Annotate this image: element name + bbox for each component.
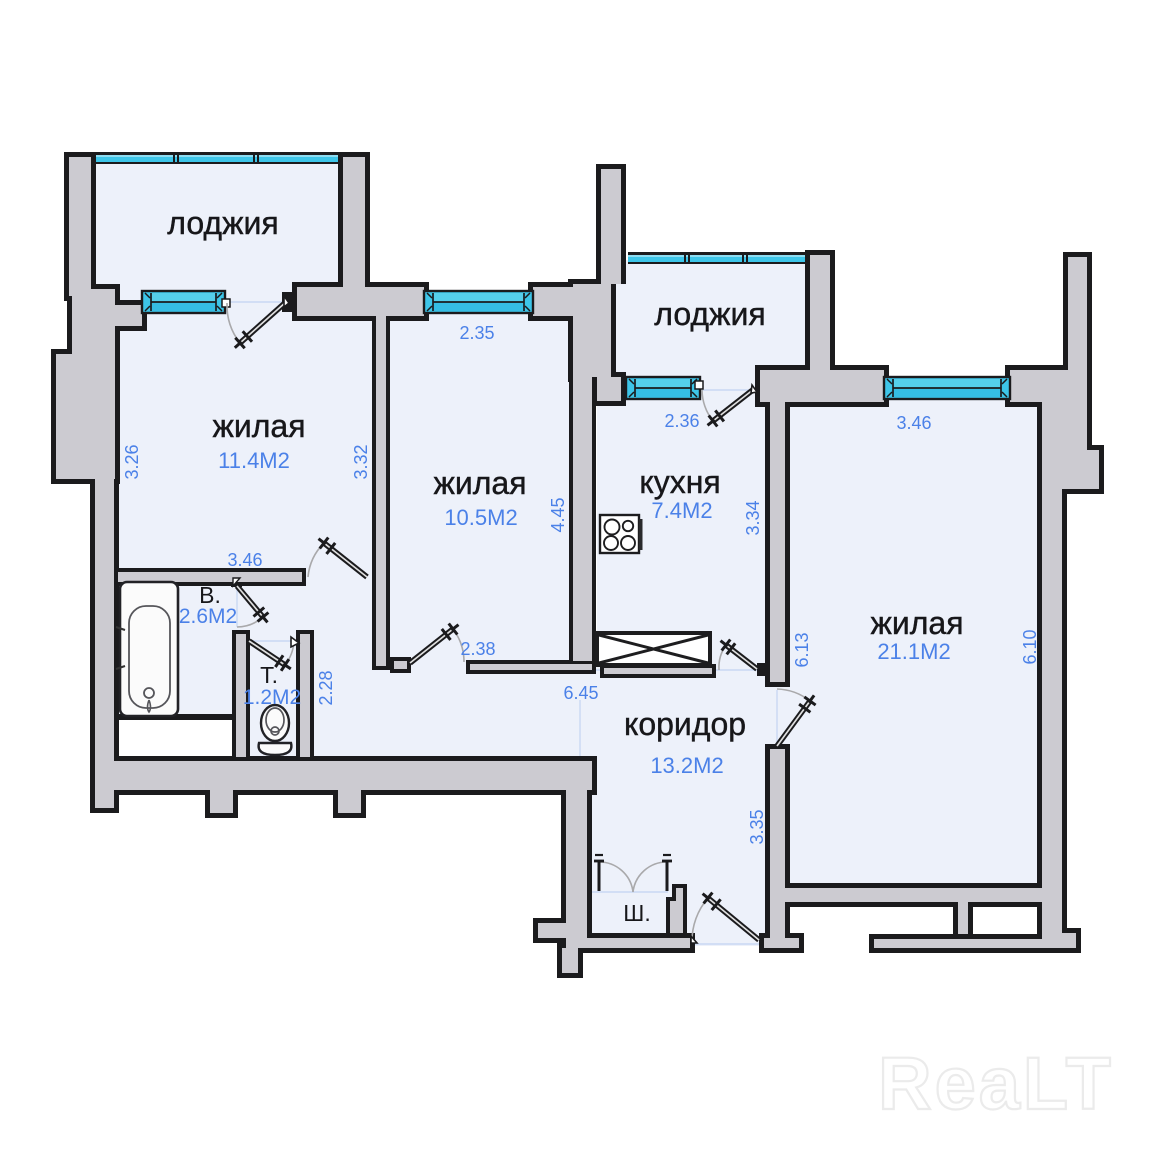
svg-text:2.35: 2.35	[459, 323, 494, 343]
svg-text:3.26: 3.26	[122, 444, 142, 479]
svg-text:жилая: жилая	[433, 465, 526, 501]
svg-text:Т.: Т.	[260, 662, 278, 688]
svg-text:кухня: кухня	[639, 464, 720, 500]
svg-text:3.46: 3.46	[896, 413, 931, 433]
svg-text:3.34: 3.34	[743, 500, 763, 535]
svg-text:2.36: 2.36	[664, 411, 699, 431]
svg-text:4.45: 4.45	[548, 497, 568, 532]
svg-text:7.4М2: 7.4М2	[651, 498, 712, 523]
svg-text:ReaLT: ReaLT	[878, 1042, 1114, 1125]
svg-text:коридор: коридор	[624, 706, 746, 742]
svg-text:2.6М2: 2.6М2	[179, 605, 237, 628]
svg-text:жилая: жилая	[212, 408, 305, 444]
svg-text:21.1М2: 21.1М2	[877, 639, 950, 664]
svg-text:6.45: 6.45	[563, 683, 598, 703]
svg-text:2.28: 2.28	[316, 670, 336, 705]
svg-text:11.4М2: 11.4М2	[218, 448, 290, 473]
svg-text:лоджия: лоджия	[167, 205, 278, 241]
svg-text:3.32: 3.32	[351, 444, 371, 479]
svg-text:6.10: 6.10	[1020, 629, 1040, 664]
svg-text:13.2М2: 13.2М2	[650, 753, 723, 778]
svg-text:1.2М2: 1.2М2	[243, 686, 301, 709]
svg-text:жилая: жилая	[870, 605, 963, 641]
svg-text:Ш.: Ш.	[623, 900, 650, 926]
svg-text:3.35: 3.35	[747, 809, 767, 844]
svg-text:2.38: 2.38	[460, 639, 495, 659]
svg-text:6.13: 6.13	[792, 632, 812, 667]
svg-text:лоджия: лоджия	[654, 296, 765, 332]
svg-text:3.46: 3.46	[227, 550, 262, 570]
svg-text:10.5М2: 10.5М2	[444, 505, 517, 530]
